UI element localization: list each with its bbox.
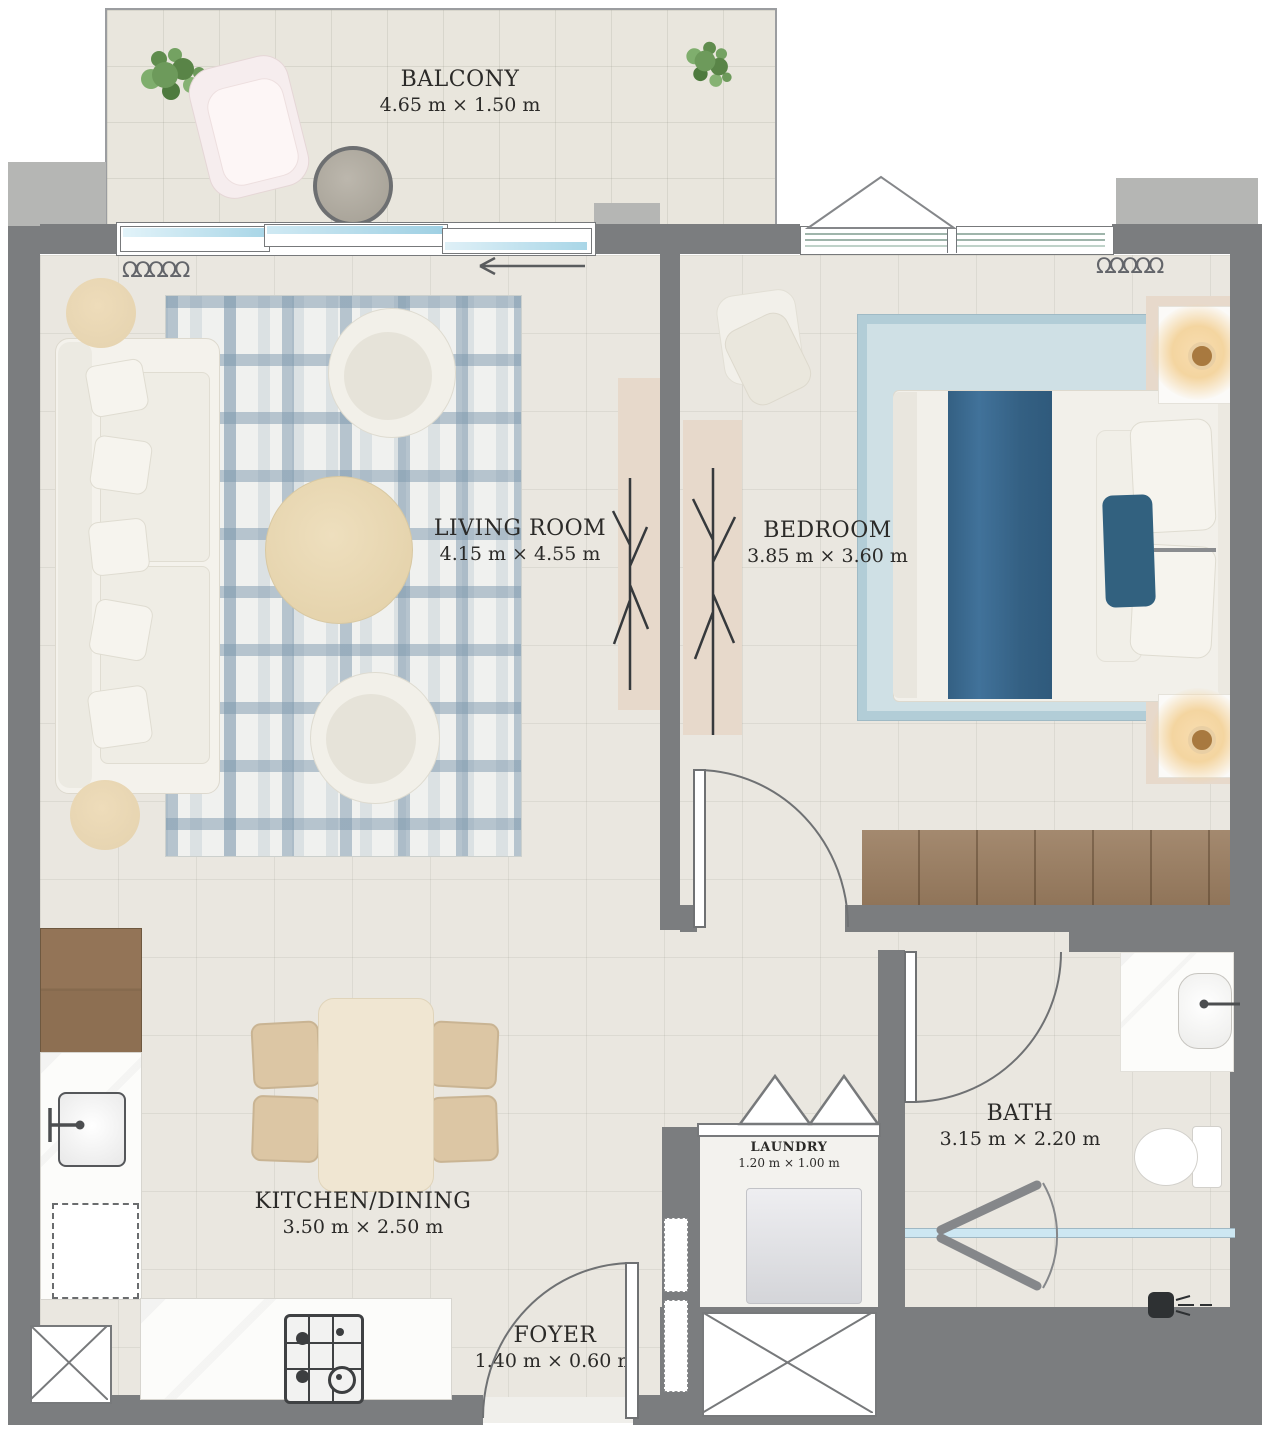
- shower-head-icon: [1148, 1292, 1174, 1318]
- dining-chair: [429, 1095, 499, 1163]
- bath-label: BATH 3.15 m × 2.20 m: [930, 1100, 1110, 1151]
- casement-triangle-icon: [808, 177, 954, 228]
- wall: [680, 905, 697, 932]
- wall-living-bedroom-divider: [660, 254, 680, 930]
- curtain-symbol-icon: ΩΩΩΩΩ: [122, 258, 187, 282]
- exterior-wall-light: [1116, 178, 1258, 226]
- room-name: FOYER: [455, 1322, 655, 1350]
- dining-chair: [428, 1020, 499, 1089]
- sofa-pillow: [87, 517, 150, 577]
- shaft-box: [30, 1325, 112, 1404]
- room-dims: 3.50 m × 2.50 m: [243, 1216, 483, 1240]
- wall: [1230, 224, 1262, 1425]
- bed-throw-line: [1154, 548, 1216, 552]
- wall-bath-north: [1069, 932, 1235, 952]
- kitchen-sink: [58, 1092, 126, 1167]
- entry-threshold: [483, 1397, 633, 1423]
- foyer-label: FOYER 1.40 m × 0.60 m: [455, 1322, 655, 1373]
- stove-burner-large: [328, 1366, 356, 1394]
- lamp-bulb-icon: [1188, 726, 1216, 754]
- balcony-round-table: [313, 146, 393, 226]
- louver-panel: [664, 1218, 688, 1292]
- window-panel: [120, 226, 270, 252]
- dining-table: [318, 998, 434, 1192]
- bedroom-label: BEDROOM 3.85 m × 3.60 m: [735, 517, 920, 568]
- bed-runner: [948, 391, 1052, 699]
- room-name: KITCHEN/DINING: [243, 1188, 483, 1216]
- dining-chair: [251, 1095, 321, 1163]
- window-glass: [267, 226, 443, 234]
- kitchen-label: KITCHEN/DINING 3.50 m × 2.50 m: [243, 1188, 483, 1239]
- louver-panel: [664, 1300, 688, 1392]
- armchair-cushion: [344, 332, 432, 420]
- sofa-back: [58, 342, 92, 788]
- plant-icon: [152, 62, 178, 88]
- room-dims: 1.20 m × 1.00 m: [703, 1156, 875, 1171]
- wall: [40, 224, 118, 254]
- sofa-pillow: [86, 684, 153, 750]
- window-mullion: [947, 226, 957, 253]
- sofa-pillow: [88, 597, 155, 662]
- stove-burner-large-dot: [336, 1374, 342, 1380]
- room-name: BEDROOM: [735, 517, 920, 545]
- toilet-bowl: [1134, 1128, 1198, 1186]
- bedroom-window: [800, 226, 1114, 255]
- lamp-bulb-icon: [1188, 342, 1216, 370]
- window-glass: [445, 242, 587, 250]
- bath-basin: [1178, 973, 1232, 1049]
- wall: [592, 224, 800, 254]
- dining-chair: [250, 1020, 321, 1089]
- shower-glass: [905, 1228, 1235, 1238]
- sofa-pillow: [89, 434, 154, 496]
- curtain-symbol-icon: ΩΩΩΩΩ: [1096, 254, 1161, 278]
- shaft-box: [702, 1312, 877, 1417]
- window-panel: [442, 228, 592, 254]
- bed-accent-pillow: [1102, 494, 1156, 608]
- coffee-table: [265, 476, 413, 624]
- decor-mat: [683, 420, 742, 735]
- dishwasher: [52, 1203, 139, 1299]
- room-dims: 3.85 m × 3.60 m: [735, 545, 920, 569]
- room-dims: 4.65 m × 1.50 m: [340, 94, 580, 118]
- room-dims: 1.40 m × 0.60 m: [455, 1350, 655, 1374]
- armchair-cushion: [326, 694, 416, 784]
- wall-bottom: [633, 1395, 662, 1425]
- balcony-label: BALCONY 4.65 m × 1.50 m: [340, 66, 580, 117]
- stove-burner: [296, 1332, 309, 1345]
- stove: [284, 1314, 364, 1404]
- laundry-label: LAUNDRY 1.20 m × 1.00 m: [703, 1140, 875, 1171]
- wall: [8, 226, 40, 1425]
- stove-burner: [336, 1328, 344, 1336]
- room-name: LIVING ROOM: [425, 515, 615, 543]
- floor-plan: BALCONY 4.65 m × 1.50 m: [0, 0, 1268, 1451]
- washing-machine: [746, 1188, 862, 1304]
- decor-mat: [618, 378, 660, 710]
- wall-bath-west: [878, 950, 905, 1310]
- room-dims: 3.15 m × 2.20 m: [930, 1128, 1110, 1152]
- exterior-wall-light: [8, 162, 106, 226]
- stove-burner: [296, 1370, 309, 1383]
- wall-bedroom-south: [845, 905, 1235, 932]
- room-dims: 4.15 m × 4.55 m: [425, 543, 615, 567]
- sofa-pillow: [84, 357, 150, 418]
- room-name: BALCONY: [340, 66, 580, 94]
- room-name: LAUNDRY: [703, 1140, 875, 1156]
- window-glass: [123, 228, 265, 237]
- living-room-label: LIVING ROOM 4.15 m × 4.55 m: [425, 515, 615, 566]
- kitchen-tall-cabinet: [40, 928, 142, 1054]
- window-panel: [264, 224, 448, 247]
- pouf: [66, 278, 136, 348]
- room-name: BATH: [930, 1100, 1110, 1128]
- pouf: [70, 780, 140, 850]
